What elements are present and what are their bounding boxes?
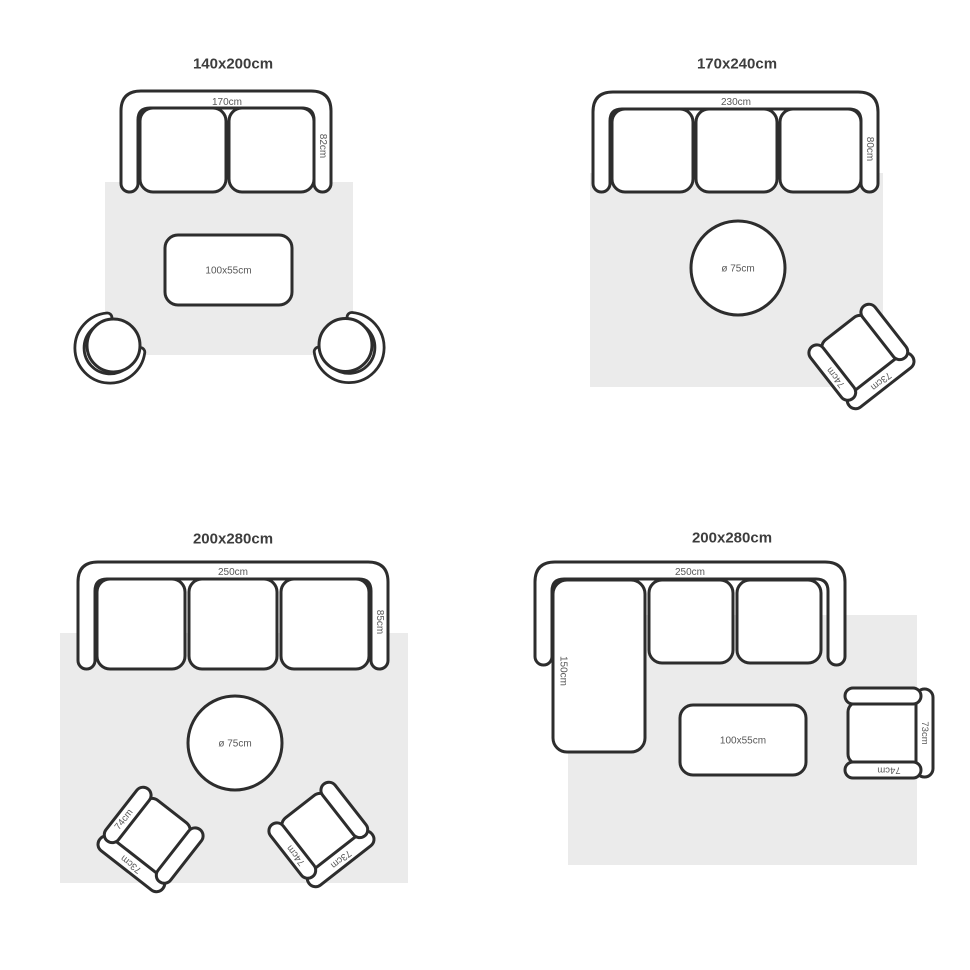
armchair-seat: [848, 702, 920, 764]
sofa-seat: [229, 108, 314, 192]
round-table-label: ø 75cm: [721, 264, 754, 275]
armchair-arm-right: [845, 688, 921, 704]
sofa-seat: [189, 579, 277, 669]
sofa-width-label: 250cm: [675, 567, 705, 578]
rug-size-diagrams: 140x200cm 170cm 82cm 100x55cm 170x240cm …: [0, 0, 970, 970]
rug-size-guide: 140x200cm 170cm 82cm 100x55cm 170x240cm …: [0, 0, 970, 970]
layout-200x280-sofa: 200x280cm 250cm 85cm ø 75cm 74cm 73cm 74…: [60, 531, 408, 896]
pouf-seat: [319, 319, 372, 372]
sofa-width-label: 170cm: [212, 97, 242, 108]
pouf-seat: [87, 319, 140, 372]
sofa-width-label: 250cm: [218, 567, 248, 578]
pouf-chair-left: [79, 318, 140, 379]
rug-size-title: 170x240cm: [697, 56, 777, 73]
sofa-width-label: 230cm: [721, 97, 751, 108]
armchair-back-label: 73cm: [919, 721, 930, 744]
rug-size-title: 140x200cm: [193, 56, 273, 73]
sofa-seat: [97, 579, 185, 669]
coffee-table-label: 100x55cm: [205, 266, 251, 277]
layout-140x200: 140x200cm 170cm 82cm 100x55cm: [79, 56, 379, 379]
round-table-label: ø 75cm: [218, 739, 251, 750]
rug-size-title: 200x280cm: [193, 531, 273, 548]
pouf-chair-right: [319, 317, 380, 378]
sofa-depth-label: 80cm: [864, 137, 875, 161]
layout-170x240: 170x240cm 230cm 80cm ø 75cm 74cm 73cm: [590, 56, 918, 413]
sofa-seat: [140, 108, 226, 192]
sofa-seat: [612, 109, 693, 192]
sofa-seat: [281, 579, 369, 669]
layout-200x280-sectional: 200x280cm 250cm 150cm 100x55cm 74cm 73cm: [535, 530, 933, 866]
coffee-table-label: 100x55cm: [720, 736, 766, 747]
armchair-arm-label: 74cm: [877, 765, 900, 776]
rug-size-title: 200x280cm: [692, 530, 772, 547]
armchair: 74cm 73cm: [845, 688, 933, 778]
sofa-seat: [780, 109, 861, 192]
sofa-depth-label: 82cm: [317, 134, 328, 158]
sofa-seat: [696, 109, 777, 192]
sofa-seat: [649, 580, 733, 663]
chaise-depth-label: 150cm: [558, 656, 569, 686]
sofa-depth-label: 85cm: [374, 610, 385, 634]
sofa-seat: [737, 580, 821, 663]
